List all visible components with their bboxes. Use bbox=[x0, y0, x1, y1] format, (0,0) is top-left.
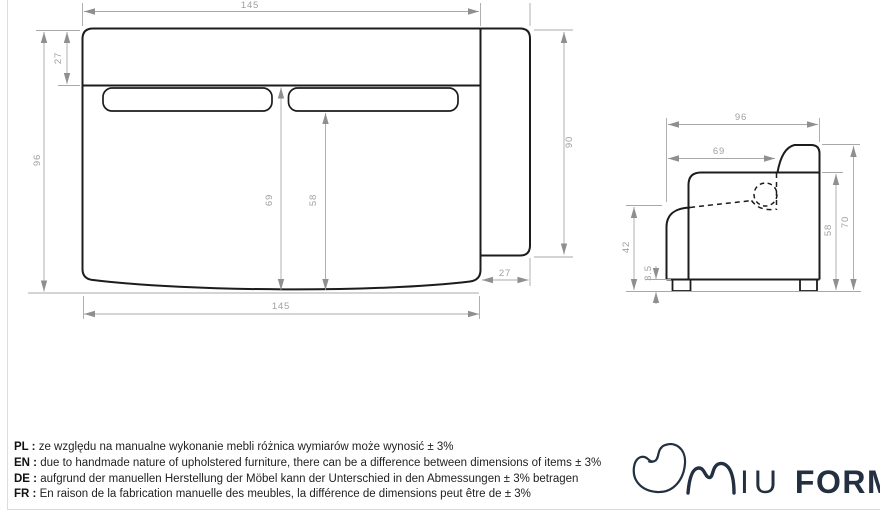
note-lang-fr-label: FR : bbox=[14, 488, 36, 500]
front-view: 145 96 27 69 58 90 27 145 bbox=[28, 0, 575, 319]
front-cushion-left bbox=[103, 88, 272, 111]
dim-label-front-seat-to-cushion: 58 bbox=[308, 194, 319, 206]
side-hidden-seat-curve bbox=[690, 201, 752, 208]
note-text-en: due to handmade nature of upholstered fu… bbox=[40, 457, 601, 469]
tolerance-notes: PL : ze względu na manualne wykonanie me… bbox=[14, 440, 601, 503]
dim-label-front-seat-to-seam: 69 bbox=[264, 194, 275, 206]
note-text-de: aufgrund der manuellen Herstellung der M… bbox=[40, 473, 578, 485]
logo-text-form: FORM bbox=[795, 464, 880, 500]
side-view: 96 69 42 3.5 58 70 bbox=[621, 112, 861, 304]
dim-label-front-height-total: 96 bbox=[32, 154, 43, 166]
dim-label-front-backrest-top: 27 bbox=[53, 52, 64, 64]
logo-text-iu: IU bbox=[740, 464, 782, 500]
technical-drawing-page: 145 96 27 69 58 90 27 145 bbox=[0, 0, 880, 520]
side-hidden-hook-curve bbox=[752, 201, 777, 210]
note-row-pl: PL : ze względu na manualne wykonanie me… bbox=[14, 440, 601, 456]
front-cushion-right bbox=[289, 88, 459, 111]
front-body-outline bbox=[83, 29, 481, 290]
note-row-de: DE : aufgrund der manuellen Herstellung … bbox=[14, 472, 601, 488]
note-lang-de: DE : bbox=[14, 473, 37, 485]
dim-label-side-seat-back-height: 58 bbox=[823, 224, 834, 236]
front-side-panel-outline bbox=[481, 29, 531, 256]
dim-label-side-backrest-height: 70 bbox=[840, 216, 851, 228]
side-backrest-outline bbox=[778, 145, 820, 280]
side-leg-front bbox=[673, 280, 691, 292]
dim-label-front-width-bottom: 145 bbox=[272, 301, 290, 312]
side-body-outline bbox=[689, 173, 820, 280]
sofa-dimension-drawing: 145 96 27 69 58 90 27 145 bbox=[0, 0, 880, 430]
miuform-logo: IU FORM ® bbox=[630, 436, 880, 508]
dim-label-front-width-top: 145 bbox=[241, 0, 259, 11]
note-lang-pl: PL : bbox=[14, 441, 36, 453]
side-hidden-roll-circle bbox=[754, 183, 777, 206]
dim-label-side-seat-depth: 69 bbox=[713, 146, 725, 157]
note-row-en: EN : due to handmade nature of upholster… bbox=[14, 456, 601, 472]
note-text-pl: ze względu na manualne wykonanie mebli r… bbox=[39, 441, 454, 453]
dim-label-side-depth-total: 96 bbox=[735, 112, 747, 123]
dim-label-side-armrest-height: 42 bbox=[621, 241, 632, 253]
svg-text:IU FORM ®: IU FORM ® bbox=[740, 464, 880, 500]
dim-label-side-leg-height: 3.5 bbox=[643, 265, 654, 281]
dim-label-front-side-panel-depth: 27 bbox=[499, 268, 511, 279]
side-leg-back bbox=[800, 280, 817, 292]
note-lang-en: EN : bbox=[14, 457, 37, 469]
dim-label-front-side-panel-height: 90 bbox=[564, 136, 575, 148]
note-row-fr: En raison de la fabrication manuelle des… bbox=[14, 487, 601, 503]
sheet-frame-bottom bbox=[7, 509, 880, 510]
logo-m-wave-icon bbox=[688, 463, 734, 493]
side-armrest-outline bbox=[667, 208, 691, 280]
note-text-fr: En raison de la fabrication manuelle des… bbox=[40, 488, 531, 500]
